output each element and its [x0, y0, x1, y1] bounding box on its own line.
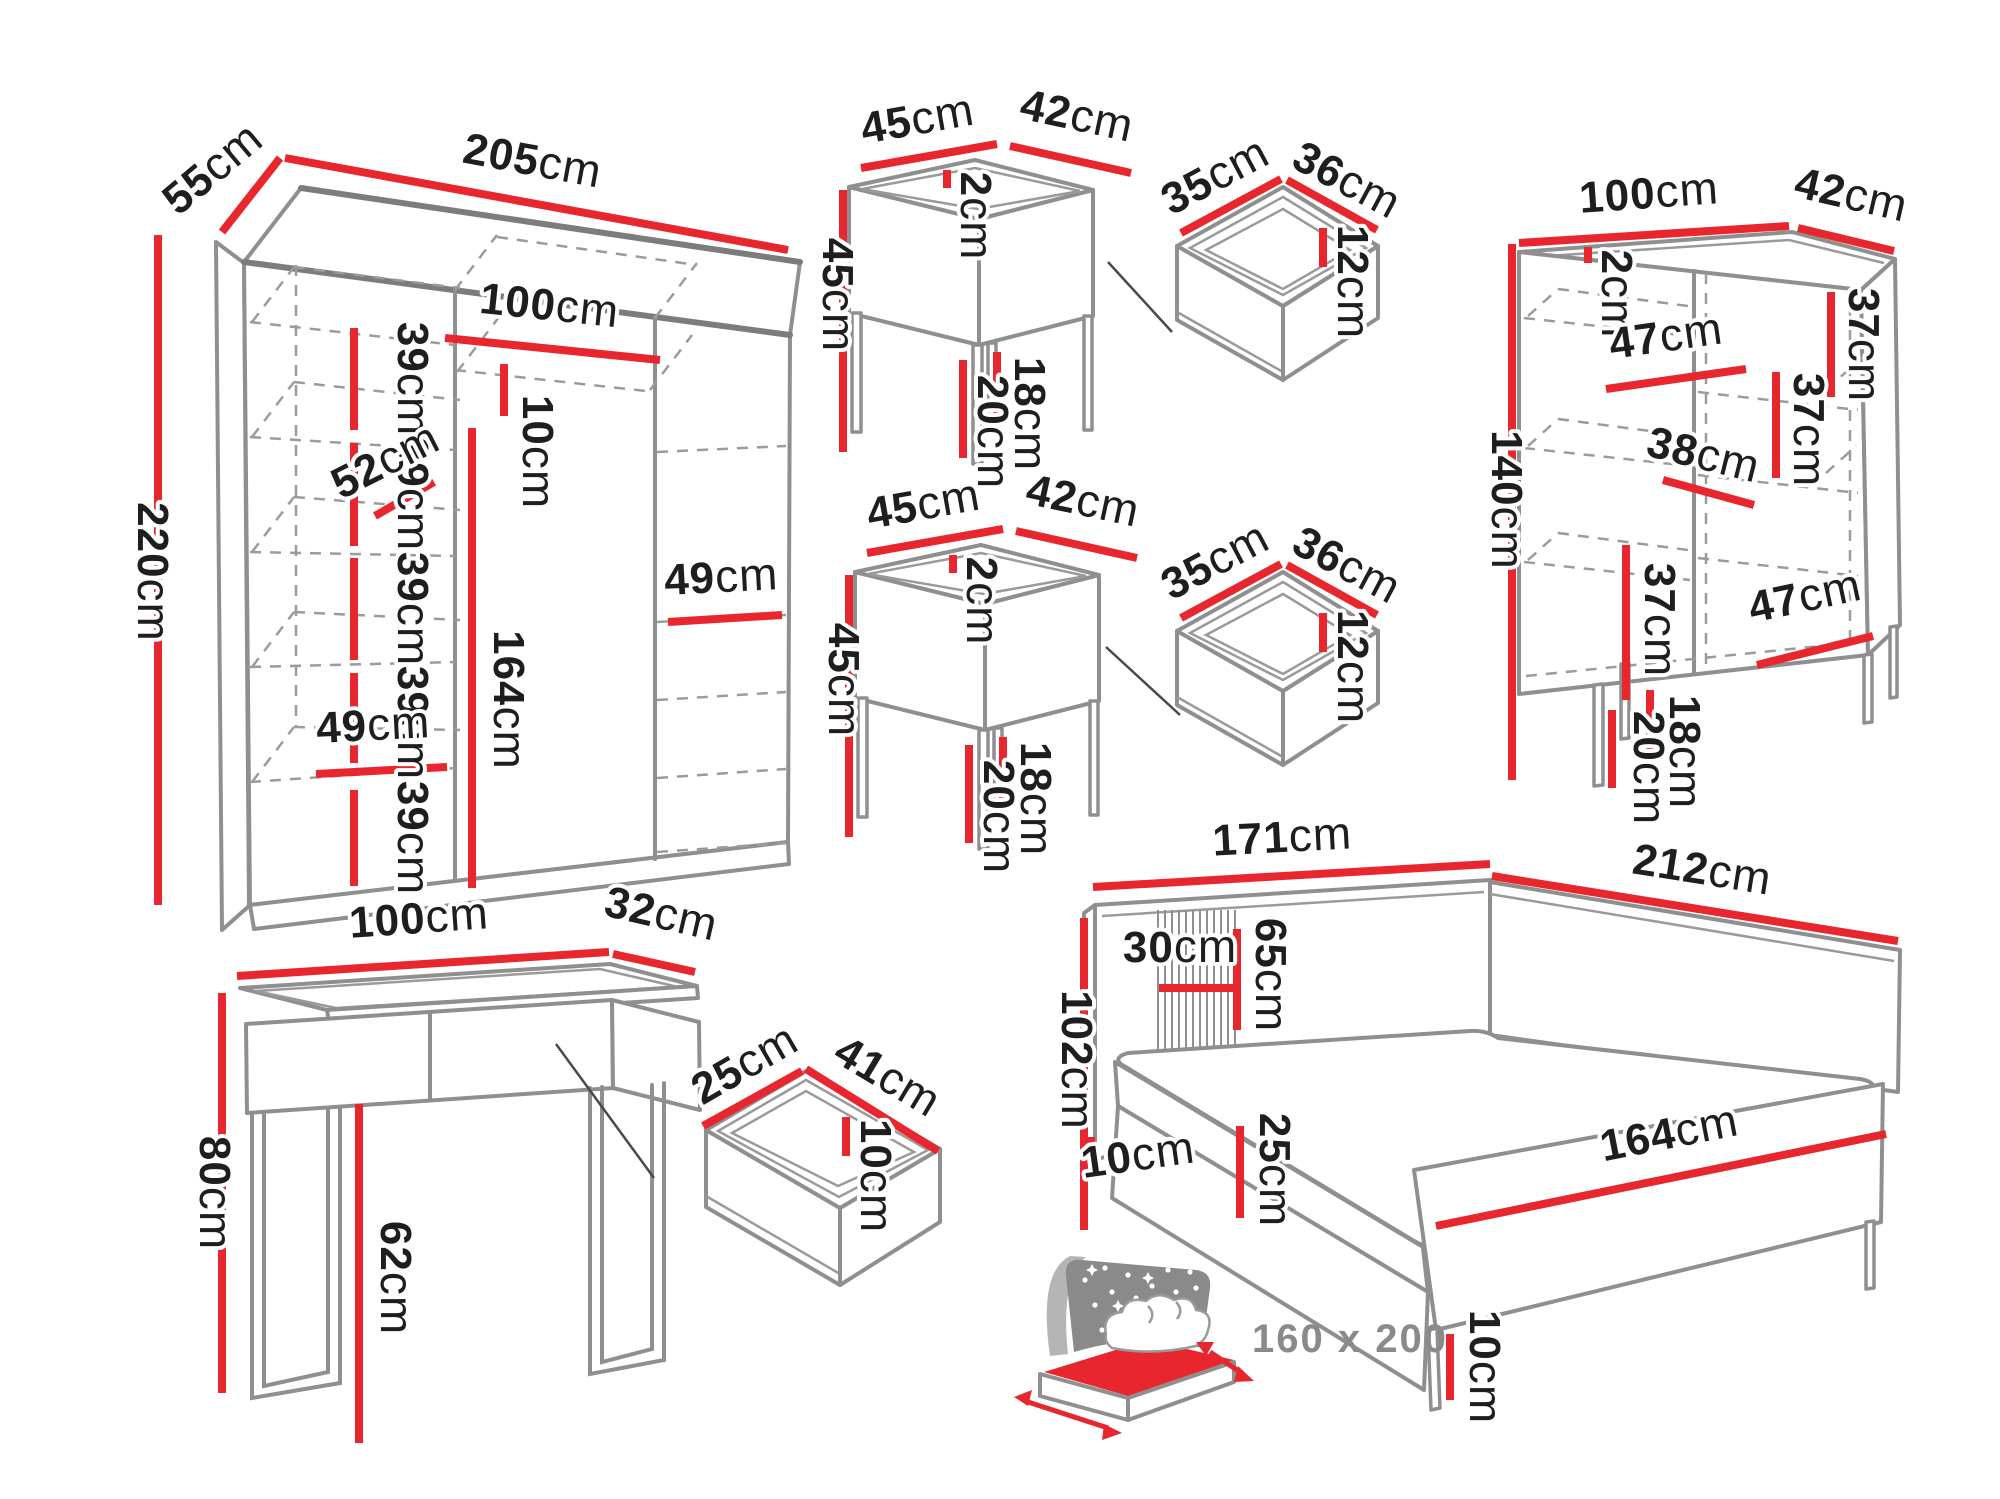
cabinet-shelf-top-right-label: 37cm: [1839, 288, 1891, 402]
nightstand-bottom-depth-dim-line: [1016, 531, 1137, 558]
wardrobe-shelf-width-right-label: 49cm: [663, 547, 780, 605]
bed-panel-height-label: 65cm: [1246, 918, 1298, 1032]
wardrobe-shelf-gap-5-label: 39cm: [388, 781, 440, 895]
nightstand-top-depth-label: 42cm: [1016, 77, 1139, 152]
nightstand-bottom-width-label: 45cm: [862, 468, 984, 539]
wardrobe-width-label: 205cm: [459, 121, 606, 198]
nightstand-top-depth-dim-line: [1010, 146, 1131, 173]
nightstand-top: 45cm 42cm 2cm 45cm 20cm 18cm: [813, 77, 1172, 489]
drawer-bottom-height-label: 12cm: [1328, 610, 1380, 724]
console-leg-frame-left-inner: [264, 1108, 328, 1386]
drawer-top: 35cm 36cm 12cm: [1152, 125, 1410, 380]
wardrobe-height-label: 220cm: [128, 502, 180, 642]
console-table: 100cm 32cm 80cm 62cm: [190, 874, 723, 1443]
console-body-right: [612, 1000, 700, 1110]
nightstand-bottom-depth-label: 42cm: [1022, 462, 1145, 537]
nightstand-bottom-height-label: 45cm: [819, 623, 871, 737]
nightstand-top-leg-right: [1084, 316, 1092, 430]
cabinet-height-label: 140cm: [1482, 430, 1534, 570]
nightstand-bottom: 45cm 42cm 2cm 45cm 20cm 18cm: [819, 462, 1180, 874]
cabinet-leg-back-right: [1890, 626, 1897, 698]
bed-length-label: 212cm: [1629, 832, 1775, 905]
nightstand-top-thickness-label: 2cm: [951, 172, 1003, 261]
nightstand-top-leg-back-label: 18cm: [1005, 357, 1057, 471]
nightstand-top-height-label: 45cm: [813, 238, 865, 352]
nightstand-top-width-label: 45cm: [856, 83, 978, 154]
cabinet-leg-front-right: [1864, 654, 1872, 723]
console-clearance-label: 62cm: [371, 1221, 423, 1335]
cabinet: 100cm 42cm 2cm 140cm 37cm 47cm 37cm 38cm…: [1482, 155, 1913, 825]
mattress-size-badge: 160 x 200: [1252, 1317, 1448, 1361]
nightstand-top-drawer-leader: [1108, 262, 1172, 332]
cabinet-leg-front-left: [1594, 684, 1603, 786]
wardrobe-hanging-height-label: 164cm: [484, 630, 536, 770]
drawer-bottom: 35cm 36cm 12cm: [1152, 510, 1410, 765]
cabinet-depth-label: 42cm: [1790, 155, 1913, 231]
drawer-top-height-label: 12cm: [1328, 225, 1380, 339]
console-drawer-height-label: 10cm: [851, 1119, 903, 1233]
wardrobe-shelf-width-lower-label: 49cm: [315, 695, 432, 753]
diagram-canvas: 55cm 205cm 220cm 39cm 39cm 39cm 39cm 39c…: [0, 0, 2000, 1499]
bed-leg-right: [1866, 1221, 1874, 1289]
bed-headboard-width-label: 171cm: [1211, 806, 1353, 865]
bed-panel-width-label: 30cm: [1123, 920, 1237, 972]
console-depth-label: 32cm: [600, 874, 723, 950]
console-height-label: 80cm: [190, 1136, 242, 1250]
wardrobe-rod-offset-label: 10cm: [513, 395, 565, 509]
wardrobe: 55cm 205cm 220cm 39cm 39cm 39cm 39cm 39c…: [128, 111, 800, 930]
console-drawer: 25cm 41cm 10cm: [682, 1012, 951, 1285]
bed-frame-height-label: 25cm: [1250, 1113, 1302, 1227]
nightstand-bottom-thickness-label: 2cm: [957, 557, 1009, 646]
bed-headboard-height-label: 102cm: [1052, 990, 1104, 1130]
nightstand-bottom-leg-right: [1090, 701, 1098, 815]
furniture-dimensions-diagram: 55cm 205cm 220cm 39cm 39cm 39cm 39cm 39c…: [0, 0, 2000, 1499]
cabinet-shelf-bottom-left-label: 37cm: [1635, 563, 1687, 677]
nightstand-bottom-drawer-leader: [1106, 647, 1180, 715]
console-leg-frame-right-inner: [602, 1085, 652, 1362]
nightstand-bottom-leg-back-label: 18cm: [1011, 742, 1063, 856]
wardrobe-depth-label: 55cm: [151, 111, 272, 224]
bed-leg-height-label: 10cm: [1460, 1310, 1512, 1424]
cabinet-leg-front-label: 20cm: [1624, 711, 1676, 825]
wardrobe-shelf-gap-3-label: 39cm: [388, 552, 440, 666]
cabinet-shelf-mid-right-label: 37cm: [1784, 373, 1836, 487]
cabinet-width-label: 100cm: [1577, 161, 1720, 223]
